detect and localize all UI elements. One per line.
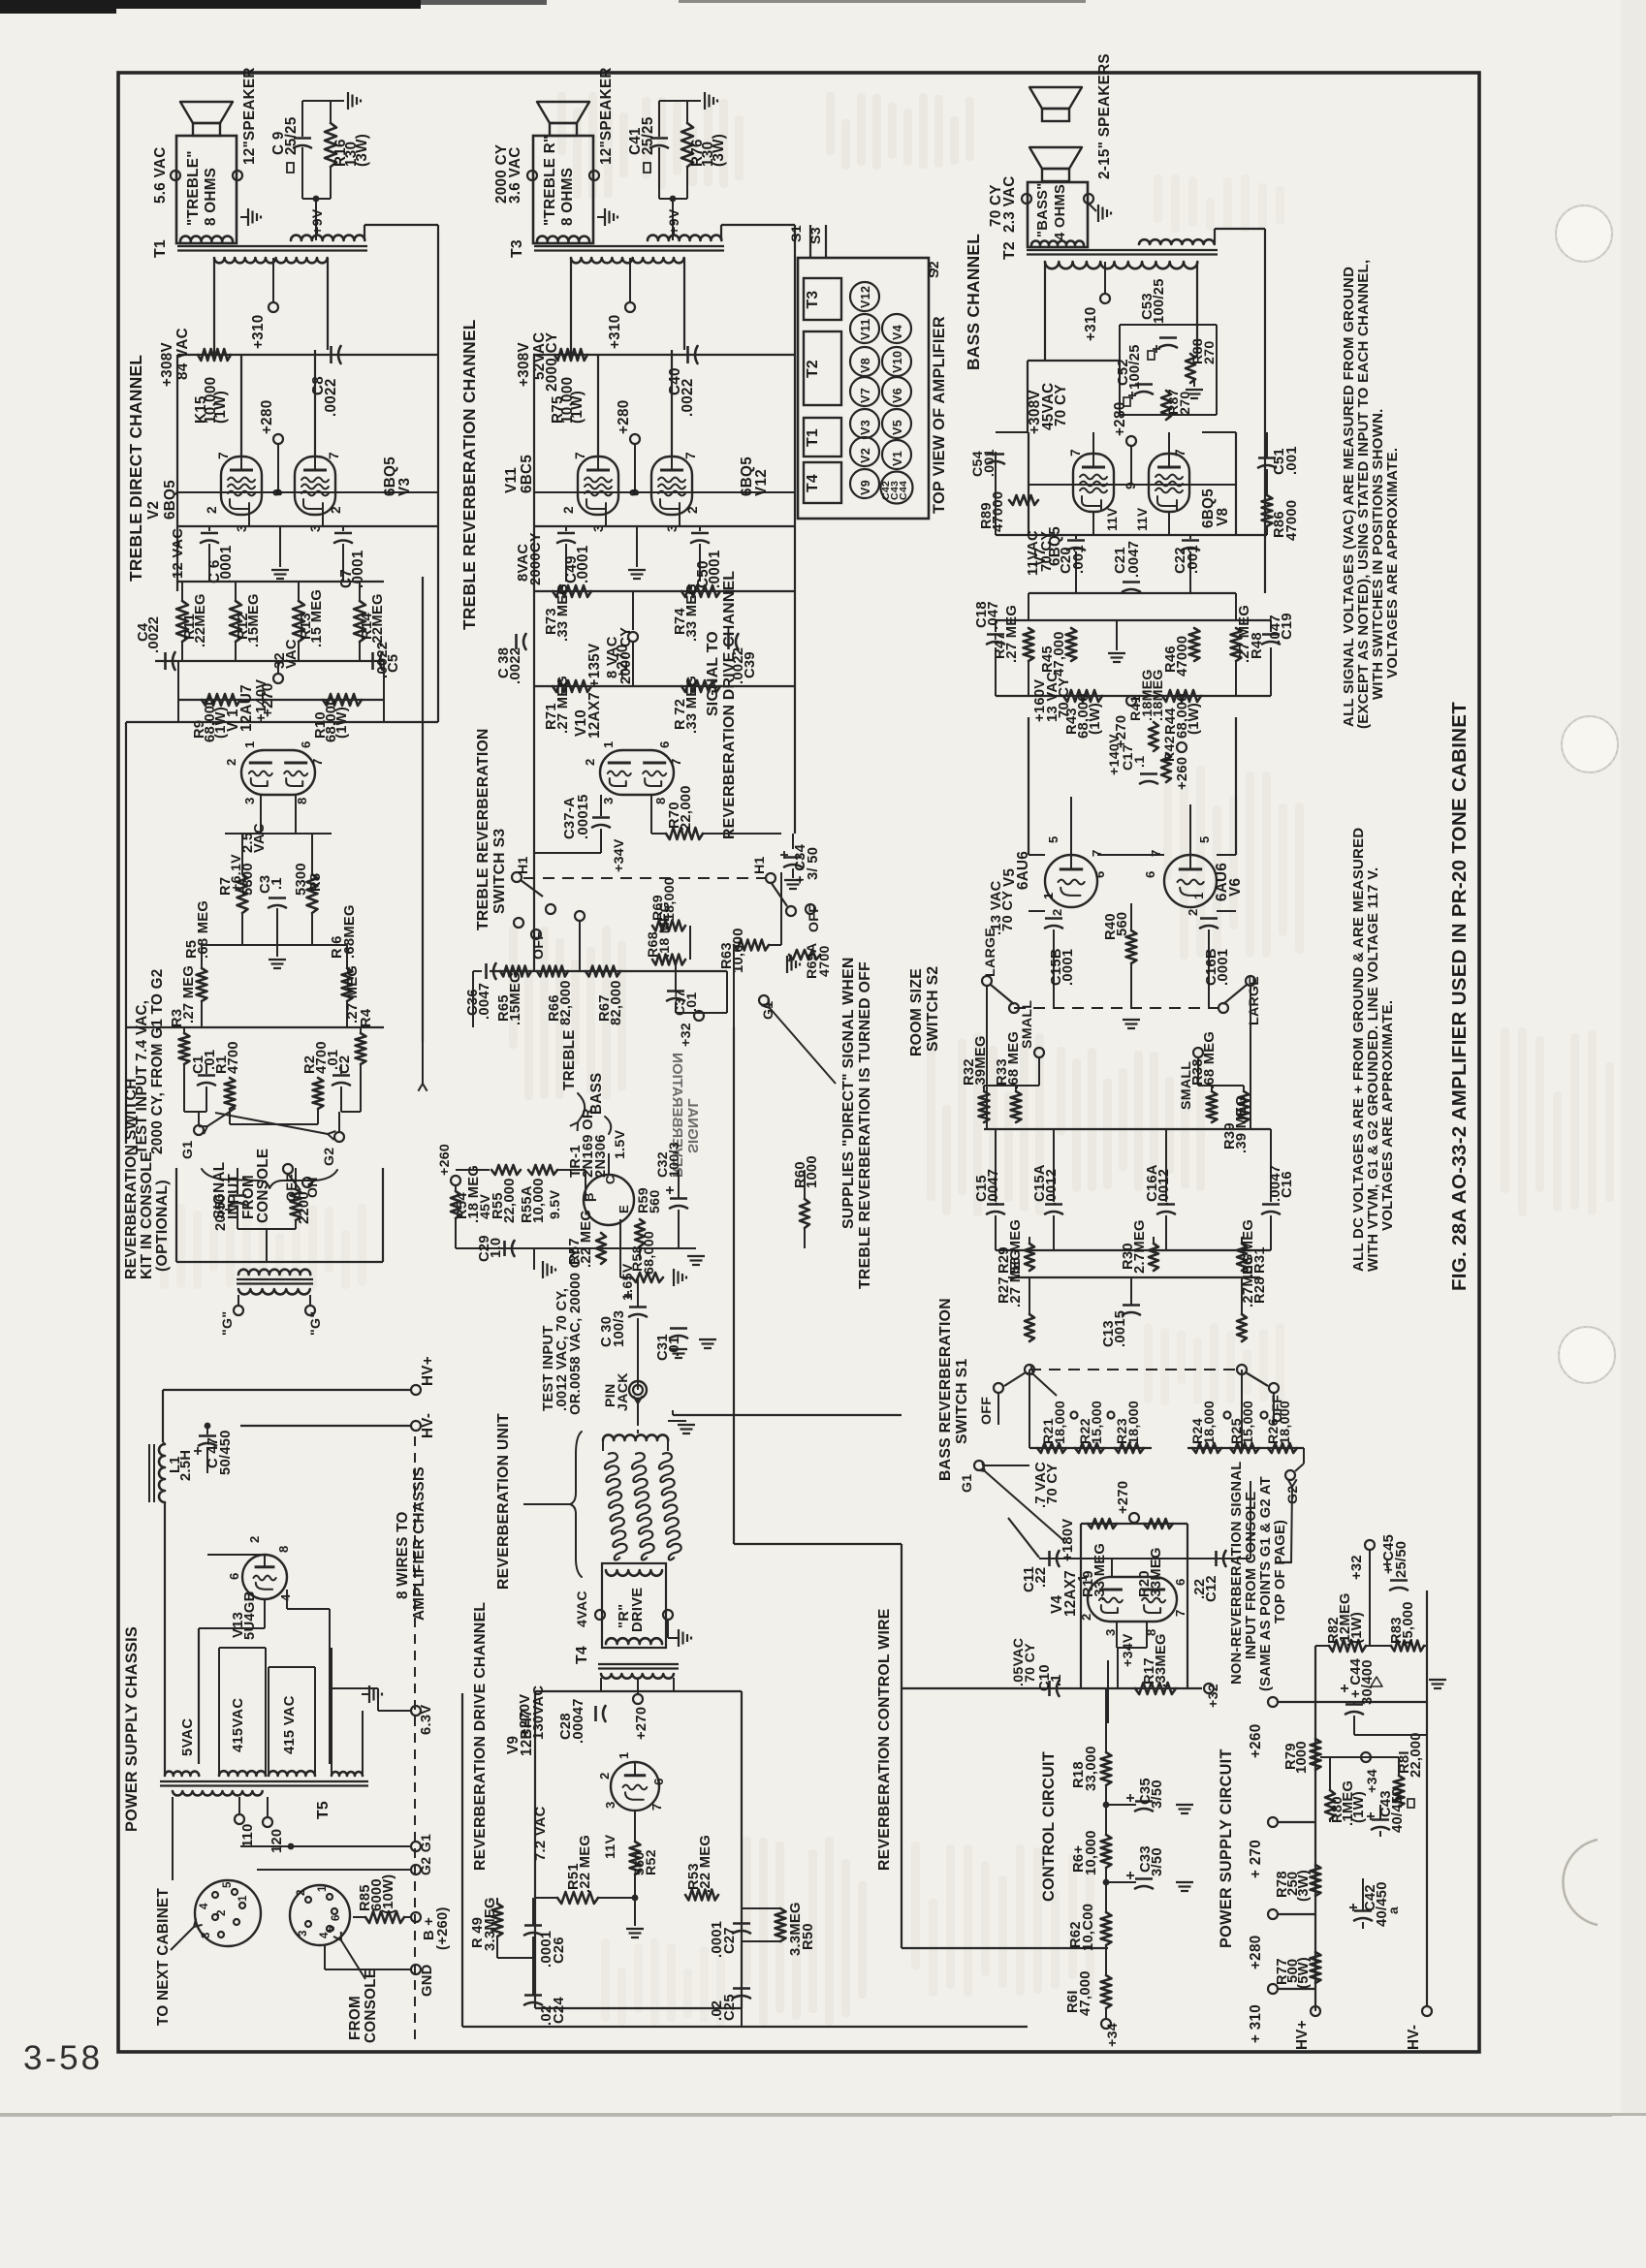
svg-text:.00015: .00015 <box>576 794 591 839</box>
svg-text:12"SPEAKER: 12"SPEAKER <box>241 67 258 165</box>
svg-text:T3: T3 <box>509 239 525 258</box>
svg-text:+34: +34 <box>1105 2023 1121 2047</box>
svg-text:.001: .001 <box>1284 446 1300 475</box>
svg-text:+280: +280 <box>1112 402 1128 436</box>
svg-text:.33 MEG: .33 MEG <box>555 583 571 642</box>
svg-text:REVERBERATION SWITCH: REVERBERATION SWITCH <box>123 1078 140 1279</box>
svg-text:2: 2 <box>247 1535 262 1543</box>
svg-text:SWITCH S1: SWITCH S1 <box>954 1359 970 1444</box>
svg-text:1: 1 <box>601 740 616 748</box>
svg-text:6: 6 <box>651 1778 666 1785</box>
svg-text:+9V: +9V <box>667 208 682 235</box>
svg-text:(3W): (3W) <box>1296 1870 1312 1902</box>
svg-text:T4: T4 <box>805 474 821 492</box>
svg-text:4: 4 <box>199 1903 210 1909</box>
svg-text:.39 MEG: .39 MEG <box>1234 1095 1250 1153</box>
svg-text:15,000: 15,000 <box>1241 1401 1256 1444</box>
svg-text:5VAC: 5VAC <box>180 1718 196 1756</box>
svg-text:+310: +310 <box>1083 307 1099 341</box>
svg-text:+260: +260 <box>437 1144 453 1176</box>
svg-text:.047: .047 <box>986 601 1001 630</box>
svg-text:5: 5 <box>1197 835 1212 843</box>
svg-text:.0012: .0012 <box>1156 1169 1172 1206</box>
svg-text:.22 MEG: .22 MEG <box>578 1835 593 1893</box>
svg-text:.0001: .0001 <box>1060 949 1076 986</box>
svg-text:2: 2 <box>224 758 238 766</box>
svg-text:7: 7 <box>649 1803 664 1811</box>
svg-text:V6: V6 <box>1227 878 1244 897</box>
svg-text:120: 120 <box>269 1829 285 1853</box>
svg-text:+308V: +308V <box>159 342 175 387</box>
svg-text:C5: C5 <box>386 654 401 673</box>
svg-text:.0001: .0001 <box>707 550 723 588</box>
svg-text:TREBLE DIRECT CHANNEL: TREBLE DIRECT CHANNEL <box>126 355 145 582</box>
svg-text:7: 7 <box>683 452 698 459</box>
svg-text:.0047: .0047 <box>1126 541 1142 578</box>
svg-text:VAC: VAC <box>284 639 300 669</box>
svg-text:C: C <box>603 1175 617 1184</box>
svg-text:T1: T1 <box>805 428 821 447</box>
svg-text:.15 MEG: .15 MEG <box>309 589 325 647</box>
svg-text:47,000: 47,000 <box>1052 631 1067 677</box>
svg-text:2: 2 <box>685 506 700 514</box>
svg-text:+140V: +140V <box>254 679 269 722</box>
svg-text:KIT IN CONSOLE: KIT IN CONSOLE <box>139 1151 155 1279</box>
svg-text:4700: 4700 <box>226 1041 241 1074</box>
svg-text:HV+: HV+ <box>1294 2020 1311 2050</box>
svg-text:2: 2 <box>216 1909 228 1916</box>
svg-text:V3: V3 <box>859 420 872 435</box>
svg-text:6: 6 <box>299 740 313 748</box>
svg-text:(3W): (3W) <box>711 134 727 167</box>
svg-text:12AX7 +135V: 12AX7 +135V <box>586 643 603 739</box>
svg-text:+308V: +308V <box>516 342 532 387</box>
svg-text:40/450: 40/450 <box>1375 1881 1390 1927</box>
svg-text:C39: C39 <box>743 651 758 678</box>
svg-text:"BASS": "BASS" <box>1035 182 1051 237</box>
svg-text:V12: V12 <box>859 286 872 308</box>
svg-text:11V: 11V <box>1105 508 1120 531</box>
svg-text:(1W): (1W) <box>212 391 229 424</box>
svg-text:1000: 1000 <box>1294 1741 1310 1774</box>
svg-text:.0022: .0022 <box>323 378 339 417</box>
svg-text:G1: G1 <box>180 1141 196 1159</box>
svg-text:6BQ5: 6BQ5 <box>162 480 178 520</box>
svg-text:.27 MEG: .27 MEG <box>181 965 197 1024</box>
svg-text:(1W): (1W) <box>1349 1612 1365 1644</box>
svg-text:7: 7 <box>1173 449 1187 457</box>
svg-text:3: 3 <box>601 797 616 804</box>
svg-text:18,000: 18,000 <box>1126 1401 1142 1444</box>
svg-text:(10W): (10W) <box>381 1874 396 1914</box>
svg-text:.68MEG: .68MEG <box>342 904 358 959</box>
svg-text:.01: .01 <box>684 992 700 1012</box>
svg-text:20/50: 20/50 <box>213 1194 229 1231</box>
svg-text:9: 9 <box>270 488 285 496</box>
svg-text:(1W): (1W) <box>1187 703 1202 735</box>
svg-text:TO NEXT CABINET: TO NEXT CABINET <box>155 1888 172 2026</box>
svg-text:2: 2 <box>1050 908 1064 916</box>
svg-text:3-58: 3-58 <box>23 2039 103 2077</box>
svg-text:3: 3 <box>1103 1628 1118 1636</box>
svg-text:1: 1 <box>617 1751 631 1759</box>
svg-text:4VAC: 4VAC <box>575 1591 590 1627</box>
svg-text:1: 1 <box>317 1885 329 1892</box>
svg-text:70 CY: 70 CY <box>1057 677 1072 718</box>
svg-text:REVERBERATION DRIVE CHANNEL: REVERBERATION DRIVE CHANNEL <box>721 571 738 839</box>
svg-text:TREBLE REVERBERATION CHANNEL: TREBLE REVERBERATION CHANNEL <box>459 319 479 630</box>
svg-text:+32: +32 <box>1349 1555 1365 1580</box>
svg-text:LARGE: LARGE <box>1247 976 1262 1025</box>
svg-text:1.0: 1.0 <box>489 1238 504 1258</box>
svg-text:+310: +310 <box>607 315 623 349</box>
svg-text:SUPPLIES "DIRECT" SIGNAL WHEN: SUPPLIES "DIRECT" SIGNAL WHEN <box>840 957 857 1229</box>
svg-text:7: 7 <box>669 758 683 766</box>
svg-text:(EXCEPT AS NOTED), USING STATE: (EXCEPT AS NOTED), USING STATED INPUT TO… <box>1356 260 1372 729</box>
svg-text:.0012: .0012 <box>1044 1169 1060 1206</box>
svg-text:.0022: .0022 <box>146 616 162 653</box>
svg-text:+280: +280 <box>1248 1936 1264 1969</box>
svg-text:3: 3 <box>603 1801 617 1809</box>
svg-text:+180V: +180V <box>1060 1519 1076 1561</box>
svg-text:SMALL: SMALL <box>1020 1000 1035 1049</box>
svg-text:V4: V4 <box>891 325 904 340</box>
svg-text:6: 6 <box>1173 1578 1187 1586</box>
svg-text:9: 9 <box>627 488 642 496</box>
svg-text:1: 1 <box>242 740 257 748</box>
svg-text:.0047: .0047 <box>477 983 492 1020</box>
svg-text:+34: +34 <box>1365 1769 1380 1793</box>
svg-text:HV-: HV- <box>420 1413 436 1438</box>
svg-text:47,000: 47,000 <box>1078 1970 1093 2016</box>
svg-text:.15MEG: .15MEG <box>246 593 262 647</box>
svg-text:18,000: 18,000 <box>1053 1401 1068 1444</box>
svg-text:C19: C19 <box>1280 613 1295 640</box>
svg-text:+34V: +34V <box>612 838 627 872</box>
svg-text:OFF: OFF <box>284 1174 300 1202</box>
svg-text:R48: R48 <box>1250 632 1265 659</box>
svg-text:+280: +280 <box>616 400 632 434</box>
svg-text:.0001: .0001 <box>575 545 591 583</box>
svg-text:11V: 11V <box>1135 508 1150 531</box>
svg-text:.27 MEG: .27 MEG <box>1004 605 1020 663</box>
svg-text:.68 MEG: .68 MEG <box>1006 1031 1022 1089</box>
svg-text:(1W): (1W) <box>1351 1791 1367 1823</box>
svg-text:H1: H1 <box>752 856 768 874</box>
svg-text:2: 2 <box>1186 908 1200 916</box>
svg-text:V9: V9 <box>859 480 872 495</box>
svg-text:C27: C27 <box>722 1927 738 1954</box>
svg-text:.001: .001 <box>1186 545 1201 574</box>
svg-text:.68 MEG: .68 MEG <box>196 900 211 959</box>
svg-text:7.2 VAC: 7.2 VAC <box>533 1806 549 1861</box>
svg-text:100/3: 100/3 <box>612 1310 627 1347</box>
svg-text:TOP VIEW OF AMPLIFIER: TOP VIEW OF AMPLIFIER <box>931 316 948 514</box>
svg-text:.0001: .0001 <box>218 545 235 583</box>
svg-text:+280: +280 <box>259 400 275 434</box>
svg-text:OR.0058 VAC, 20000 CY: OR.0058 VAC, 20000 CY <box>568 1247 584 1415</box>
svg-text:.1: .1 <box>1049 1674 1064 1686</box>
svg-text:4 OHMS: 4 OHMS <box>1053 184 1068 240</box>
svg-text:+32: +32 <box>1206 1684 1221 1708</box>
svg-text:.00047: .00047 <box>571 1698 586 1744</box>
svg-text:15,000: 15,000 <box>1401 1601 1416 1647</box>
svg-text:7: 7 <box>216 452 231 459</box>
svg-text:R4: R4 <box>359 1008 374 1027</box>
svg-text:V2: V2 <box>859 448 872 463</box>
svg-text:(1W): (1W) <box>569 391 586 424</box>
svg-text:68,000: 68,000 <box>642 1231 657 1275</box>
svg-text:+260: +260 <box>1175 757 1190 790</box>
svg-text:18,000: 18,000 <box>1202 1401 1218 1444</box>
svg-text:V3: V3 <box>396 478 413 496</box>
svg-text:22,000: 22,000 <box>1409 1732 1424 1778</box>
svg-text:TREBLE: TREBLE <box>561 1029 578 1090</box>
svg-text:(SAME AS POINTS G1 & G2 AT: (SAME AS POINTS G1 & G2 AT <box>1258 1476 1274 1691</box>
svg-text:(OPTIONAL): (OPTIONAL) <box>154 1180 171 1272</box>
svg-text:V6: V6 <box>891 388 904 403</box>
svg-text:E: E <box>617 1205 631 1213</box>
svg-text:1: 1 <box>1041 892 1056 899</box>
svg-text:SIGNAL TO: SIGNAL TO <box>705 631 721 716</box>
svg-text:G2: G2 <box>1285 1486 1301 1504</box>
svg-text:.15MEG: .15MEG <box>508 971 523 1025</box>
svg-text:2000 CY: 2000 CY <box>544 332 560 392</box>
svg-text:8 WIRES TO: 8 WIRES TO <box>395 1511 411 1599</box>
svg-text:+ 270: + 270 <box>1248 1840 1264 1878</box>
svg-text:GND: GND <box>420 1964 435 1997</box>
svg-text:T5: T5 <box>315 1801 332 1819</box>
svg-text:VOLTAGES ARE APPROXIMATE.: VOLTAGES ARE APPROXIMATE. <box>1385 448 1401 678</box>
svg-text:S1: S1 <box>789 225 805 242</box>
svg-text:.18MEG: .18MEG <box>1151 669 1166 721</box>
svg-text:+260: +260 <box>1248 1724 1264 1758</box>
svg-text:G2: G2 <box>322 1148 337 1166</box>
svg-text:OFF: OFF <box>807 904 822 932</box>
svg-text:8 OHMS: 8 OHMS <box>203 168 219 226</box>
svg-text:6.3V: 6.3V <box>419 1705 434 1735</box>
svg-text:BASS REVERBERATION: BASS REVERBERATION <box>937 1298 954 1481</box>
svg-text:OFF: OFF <box>531 931 547 960</box>
svg-text:6: 6 <box>227 1572 241 1580</box>
svg-text:110: 110 <box>240 1823 256 1847</box>
svg-text:3/50: 3/50 <box>1150 1780 1165 1809</box>
svg-text:415 VAC: 415 VAC <box>282 1695 298 1754</box>
svg-text:DRIVE: DRIVE <box>630 1588 646 1632</box>
svg-text:70 CY: 70 CY <box>1000 891 1016 931</box>
svg-text:3/ 50: 3/ 50 <box>806 847 821 880</box>
svg-text:V5: V5 <box>891 420 904 435</box>
svg-text:8: 8 <box>276 1545 291 1553</box>
svg-text:ALL SIGNAL VOLTAGES (VAC) ARE: ALL SIGNAL VOLTAGES (VAC) ARE MEASURED F… <box>1342 267 1357 727</box>
svg-text:10,C00: 10,C00 <box>1081 1904 1096 1951</box>
svg-text:R52: R52 <box>644 1849 659 1875</box>
svg-text:5300: 5300 <box>240 863 256 896</box>
svg-text:7: 7 <box>327 452 341 459</box>
svg-text:FROM: FROM <box>347 1996 364 2040</box>
svg-text:+ 310: + 310 <box>1248 2004 1264 2043</box>
svg-text:415VAC: 415VAC <box>231 1698 246 1752</box>
svg-text:C44: C44 <box>898 481 909 500</box>
svg-text:HV+: HV+ <box>420 1356 436 1386</box>
svg-text:.0015: .0015 <box>1113 1310 1128 1347</box>
svg-text:47000: 47000 <box>1175 636 1190 677</box>
svg-text:47000: 47000 <box>1284 500 1300 541</box>
svg-text:"TREBLE": "TREBLE" <box>185 150 202 226</box>
svg-text:R50: R50 <box>801 1923 816 1950</box>
svg-text:+310: +310 <box>250 315 267 349</box>
svg-text:18,000: 18,000 <box>1278 1401 1293 1444</box>
svg-text:4700: 4700 <box>817 945 833 977</box>
svg-text:T4: T4 <box>574 1646 590 1664</box>
svg-text:+32: +32 <box>679 1023 694 1047</box>
svg-text:5: 5 <box>222 1881 234 1888</box>
svg-text:V7: V7 <box>859 388 872 403</box>
svg-text:.1: .1 <box>269 877 285 890</box>
svg-text:2: 2 <box>205 506 219 514</box>
svg-text:(1W): (1W) <box>1088 703 1103 735</box>
svg-text:2000CY: 2000CY <box>528 532 544 585</box>
svg-text:2: 2 <box>296 1889 307 1896</box>
svg-text:WITH SWITCHES IN POSITIONS SHO: WITH SWITCHES IN POSITIONS SHOWN. <box>1371 408 1386 700</box>
svg-text:2000 CY: 2000 CY <box>493 144 510 204</box>
svg-text:C16: C16 <box>1280 1171 1295 1198</box>
svg-text:70 CY: 70 CY <box>1023 1643 1038 1683</box>
svg-text:7: 7 <box>310 758 325 766</box>
svg-text:6BC5: 6BC5 <box>519 455 535 493</box>
svg-text:SWITCH S3: SWITCH S3 <box>491 829 508 914</box>
svg-text:T3: T3 <box>805 291 821 309</box>
svg-text:15,000: 15,000 <box>1090 1401 1105 1444</box>
svg-text:2N306: 2N306 <box>593 1134 609 1178</box>
svg-text:REVERBERATION DRIVE CHANNEL: REVERBERATION DRIVE CHANNEL <box>472 1602 489 1871</box>
svg-text:S3: S3 <box>808 227 824 244</box>
svg-text:V11: V11 <box>503 467 520 493</box>
svg-text:1: 1 <box>1191 892 1206 899</box>
svg-text:.001: .001 <box>1071 545 1087 574</box>
svg-text:2: 2 <box>597 1772 612 1780</box>
svg-text:REVERBERATION UNIT: REVERBERATION UNIT <box>495 1413 512 1590</box>
svg-text:NON-REVERBERATION SIGNAL: NON-REVERBERATION SIGNAL <box>1229 1461 1245 1685</box>
svg-text:5300: 5300 <box>294 863 309 896</box>
svg-text:POWER SUPPLY CIRCUIT: POWER SUPPLY CIRCUIT <box>1218 1748 1235 1948</box>
svg-text:G2 G1: G2 G1 <box>419 1834 434 1875</box>
svg-text:BASS CHANNEL: BASS CHANNEL <box>964 234 983 370</box>
svg-text:(+260): (+260) <box>435 1906 451 1950</box>
svg-text:50/450: 50/450 <box>218 1430 234 1475</box>
svg-text:6: 6 <box>1143 870 1157 878</box>
svg-text:82,000: 82,000 <box>558 980 574 1025</box>
svg-text:.33 MEG: .33 MEG <box>684 676 700 734</box>
svg-text:12 VAC: 12 VAC <box>171 528 186 579</box>
svg-text:.22 MEG: .22 MEG <box>698 1835 713 1893</box>
svg-text:7: 7 <box>573 452 587 459</box>
svg-text:5: 5 <box>1046 835 1060 843</box>
svg-text:3: 3 <box>201 1932 212 1938</box>
svg-text:22,000: 22,000 <box>679 785 694 831</box>
svg-text:3: 3 <box>298 1930 309 1937</box>
svg-text:(3W): (3W) <box>354 134 370 167</box>
svg-text:.0022: .0022 <box>508 647 523 684</box>
svg-text:3/50: 3/50 <box>1150 1847 1165 1876</box>
svg-text:T2: T2 <box>1001 241 1018 260</box>
svg-text:"G": "G" <box>308 1311 324 1336</box>
svg-text:.0022: .0022 <box>680 378 696 417</box>
svg-text:100/3: 100/3 <box>667 1142 682 1178</box>
svg-text:.33MEG: .33MEG <box>1149 1547 1164 1601</box>
svg-text:ALL DC VOLTAGES ARE + FROM GRO: ALL DC VOLTAGES ARE + FROM GROUND & ARE … <box>1351 828 1367 1272</box>
svg-text:H1: H1 <box>516 856 531 874</box>
svg-text:100/25: 100/25 <box>1127 344 1143 390</box>
svg-text:2: 2 <box>329 506 343 514</box>
svg-text:22,000: 22,000 <box>502 1178 518 1223</box>
svg-text:2-15" SPEAKERS: 2-15" SPEAKERS <box>1096 53 1113 179</box>
svg-text:560: 560 <box>1115 912 1130 936</box>
svg-text:.33 MEG: .33 MEG <box>684 583 700 642</box>
svg-text:WITH VTVM, G1 & G2 GROUNDED.: WITH VTVM, G1 & G2 GROUNDED. LINE VOLTAG… <box>1366 867 1381 1273</box>
svg-text:a: a <box>1386 1906 1401 1914</box>
svg-text:10,000: 10,000 <box>531 1178 547 1223</box>
svg-text:OFF: OFF <box>979 1397 995 1425</box>
svg-text:12BH7: 12BH7 <box>519 1709 535 1756</box>
svg-text:1: 1 <box>1075 1574 1090 1582</box>
svg-text:2: 2 <box>561 506 576 514</box>
svg-text:100/25: 100/25 <box>1152 278 1167 324</box>
svg-text:V2: V2 <box>145 501 162 520</box>
svg-text:ON: ON <box>305 1177 321 1198</box>
svg-text:+270: +270 <box>634 1707 649 1740</box>
svg-text:12"SPEAKER: 12"SPEAKER <box>598 67 615 165</box>
svg-text:.39MEG: .39MEG <box>973 1035 989 1089</box>
svg-text:.33 MEG: .33 MEG <box>1092 1543 1108 1601</box>
svg-text:R8: R8 <box>308 873 324 892</box>
svg-text:+270: +270 <box>1116 1481 1131 1514</box>
svg-text:V8: V8 <box>1215 508 1231 526</box>
svg-text:T2: T2 <box>805 360 821 378</box>
svg-text:C25: C25 <box>722 1994 738 2021</box>
svg-text:11V: 11V <box>603 1834 618 1859</box>
svg-text:AMPLIFIER CHASSIS: AMPLIFIER CHASSIS <box>411 1466 427 1621</box>
svg-text:SWITCH S2: SWITCH S2 <box>925 966 941 1052</box>
svg-text:8: 8 <box>295 797 309 804</box>
svg-text:REVERBERATION CONTROL WIRE: REVERBERATION CONTROL WIRE <box>876 1608 893 1871</box>
svg-text:TOP OF PAGE): TOP OF PAGE) <box>1273 1520 1288 1623</box>
svg-text:CONTROL CIRCUIT: CONTROL CIRCUIT <box>1040 1751 1058 1902</box>
svg-text:.33MEG: .33MEG <box>1154 1633 1169 1687</box>
svg-text:12AU7: 12AU7 <box>238 684 255 732</box>
svg-text:POWER SUPPLY CHASSIS: POWER SUPPLY CHASSIS <box>123 1626 141 1832</box>
svg-text:2.7MEG: 2.7MEG <box>1132 1219 1148 1274</box>
svg-text:C12: C12 <box>1204 1575 1219 1602</box>
svg-text:2: 2 <box>583 758 597 766</box>
svg-text:.0047: .0047 <box>986 1169 1001 1206</box>
svg-text:.0001: .0001 <box>1216 949 1231 986</box>
svg-text:270: 270 <box>1202 340 1218 364</box>
svg-text:4: 4 <box>319 1932 331 1938</box>
svg-text:SIGNAL: SIGNAL <box>684 1098 701 1153</box>
svg-text:25/25: 25/25 <box>640 116 656 155</box>
svg-text:HV-: HV- <box>1406 2025 1422 2050</box>
svg-text:R28: R28 <box>1252 1276 1268 1304</box>
svg-text:8: 8 <box>653 797 668 804</box>
svg-text:1.5V: 1.5V <box>613 1129 628 1159</box>
svg-text:6: 6 <box>1092 870 1107 878</box>
svg-text:FIG. 28A AO-33-2 AMPLIFIER US: FIG. 28A AO-33-2 AMPLIFIER USED IN PR-20… <box>1448 702 1471 1291</box>
svg-text:6: 6 <box>331 1914 342 1921</box>
svg-text:10,000: 10,000 <box>1084 1830 1099 1875</box>
svg-text:70 CY: 70 CY <box>1039 531 1055 572</box>
svg-text:V11: V11 <box>859 318 872 340</box>
